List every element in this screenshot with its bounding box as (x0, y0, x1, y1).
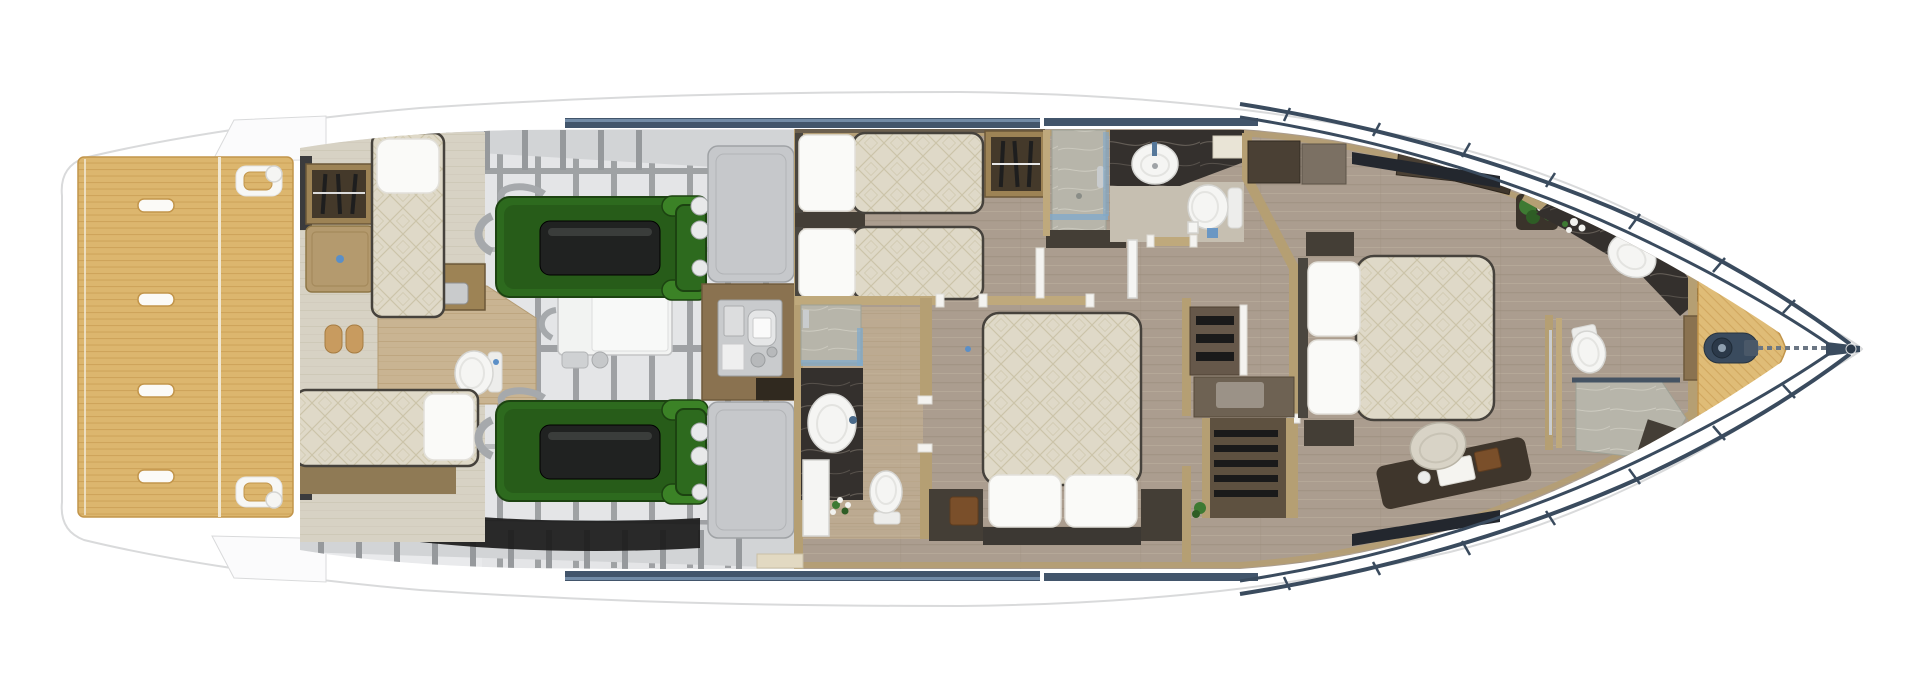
vip-shower-floor (801, 305, 861, 363)
vip-bath-cabinet (803, 460, 829, 536)
teak-center-seam (218, 157, 221, 517)
open-door-leaf (1128, 240, 1137, 298)
landing-box (1216, 382, 1264, 408)
wardrobe-rail (313, 192, 365, 194)
hatch-handle (138, 199, 174, 212)
technical-room (702, 284, 798, 400)
twin-wardrobe (985, 131, 1047, 197)
vip-shower-column (803, 310, 809, 328)
vip-toilet (870, 471, 902, 524)
crew-toilet (455, 351, 502, 395)
stair-rail (1240, 305, 1247, 375)
swim-platform (78, 157, 293, 517)
vip-sink (808, 394, 857, 452)
master-nightstand-bottom (1304, 420, 1354, 446)
anchor-windlass (1704, 333, 1758, 363)
master-dresser (1248, 141, 1300, 183)
guest-bath-scale (1207, 228, 1218, 238)
twin-bed-bottom (795, 227, 983, 299)
stairs-upper (1190, 305, 1247, 375)
bow-roller-wheel (1846, 344, 1856, 354)
fuel-tank-bottom (708, 402, 794, 538)
shower-drain (1076, 193, 1082, 199)
crew-wardrobe (306, 164, 372, 224)
fuel-tank-top (708, 146, 794, 282)
guest-bathroom (1110, 130, 1244, 242)
twin-bed-top (795, 133, 983, 213)
yacht-floorplan-canvas (0, 0, 1920, 700)
vip-nightstand-right (1141, 489, 1183, 541)
crew-stool (346, 325, 363, 353)
hatch-handle (138, 384, 174, 397)
floor-fitting (965, 346, 971, 352)
shower-column (1097, 166, 1104, 188)
swim-platform-teak-deck (78, 157, 293, 517)
vip-shower-glass-side (857, 328, 863, 366)
deck-fitting-bottom (266, 492, 282, 508)
deck-fitting-top (266, 166, 282, 182)
faucet (1152, 142, 1157, 156)
engine-port (479, 187, 709, 300)
master-nightstand-top (1306, 232, 1354, 256)
crew-bed-lower (296, 390, 478, 494)
shower-glass-panel (1103, 132, 1109, 216)
vip-shower-glass (801, 360, 863, 366)
crew-bed-upper (372, 133, 444, 317)
hatch-handle (138, 293, 174, 306)
crew-desk (306, 226, 374, 292)
vip-nightstand-box (950, 497, 978, 525)
engine-starboard (479, 391, 709, 504)
guest-bath-shelf (1213, 136, 1243, 158)
teak-margin-seam (84, 159, 86, 515)
master-dresser-2 (1302, 144, 1346, 184)
deck-plan-svg (0, 0, 1920, 700)
guest-bath-bin (1188, 222, 1198, 233)
desk-pad (1474, 448, 1502, 473)
crew-stool (325, 325, 342, 353)
technical-room-opening (756, 378, 796, 400)
shower-glass-door (1050, 214, 1108, 220)
vip-bench (757, 554, 803, 568)
vip-bathroom (801, 298, 932, 539)
twin-nightstand (795, 212, 865, 228)
stairs-lower (1202, 418, 1294, 518)
door-jamb (1036, 248, 1044, 298)
faucet (849, 416, 857, 424)
hatch-handle (138, 470, 174, 483)
